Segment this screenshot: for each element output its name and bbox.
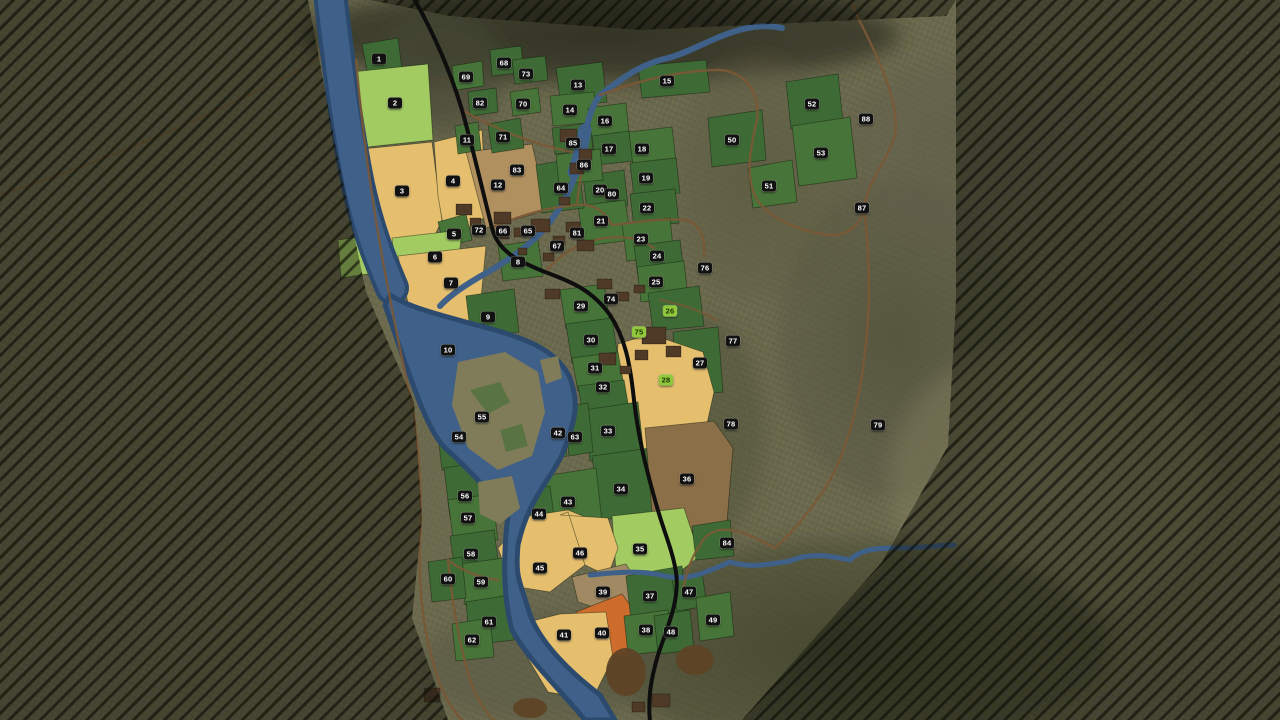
field-label-82[interactable]: 82 [473,98,487,109]
field-label-79[interactable]: 79 [871,420,885,431]
field-label-88[interactable]: 88 [859,114,873,125]
field-label-67[interactable]: 67 [550,241,564,252]
field-label-87[interactable]: 87 [855,203,869,214]
field-label-55[interactable]: 55 [475,412,489,423]
field-label-48[interactable]: 48 [664,627,678,638]
field-label-47[interactable]: 47 [682,587,696,598]
field-label-56[interactable]: 56 [458,491,472,502]
field-label-76[interactable]: 76 [698,263,712,274]
field-label-30[interactable]: 30 [584,335,598,346]
field-label-31[interactable]: 31 [588,363,602,374]
field-label-46[interactable]: 46 [573,548,587,559]
field-label-37[interactable]: 37 [643,591,657,602]
field-label-39[interactable]: 39 [596,587,610,598]
field-label-3[interactable]: 3 [395,186,409,197]
field-label-19[interactable]: 19 [639,173,653,184]
field-label-28[interactable]: 28 [659,375,673,386]
field-label-14[interactable]: 14 [563,105,577,116]
field-label-45[interactable]: 45 [533,563,547,574]
field-label-63[interactable]: 63 [568,432,582,443]
field-label-2[interactable]: 2 [388,98,402,109]
field-label-6[interactable]: 6 [428,252,442,263]
field-label-23[interactable]: 23 [634,234,648,245]
field-label-8[interactable]: 8 [511,257,525,268]
field-label-73[interactable]: 73 [519,69,533,80]
field-label-35[interactable]: 35 [633,544,647,555]
field-label-54[interactable]: 54 [452,432,466,443]
field-label-71[interactable]: 71 [496,132,510,143]
field-label-66[interactable]: 66 [496,226,510,237]
field-label-21[interactable]: 21 [594,216,608,227]
field-label-42[interactable]: 42 [551,428,565,439]
field-label-80[interactable]: 80 [605,189,619,200]
field-label-84[interactable]: 84 [720,538,734,549]
field-label-25[interactable]: 25 [649,277,663,288]
field-label-65[interactable]: 65 [521,226,535,237]
field-label-34[interactable]: 34 [614,484,628,495]
field-label-7[interactable]: 7 [444,278,458,289]
field-label-49[interactable]: 49 [706,615,720,626]
field-label-29[interactable]: 29 [574,301,588,312]
field-label-61[interactable]: 61 [482,617,496,628]
field-label-64[interactable]: 64 [554,183,568,194]
field-label-62[interactable]: 62 [465,635,479,646]
field-label-59[interactable]: 59 [474,577,488,588]
field-label-52[interactable]: 52 [805,99,819,110]
field-label-16[interactable]: 16 [598,116,612,127]
field-label-78[interactable]: 78 [724,419,738,430]
field-label-60[interactable]: 60 [441,574,455,585]
field-label-43[interactable]: 43 [561,497,575,508]
field-label-17[interactable]: 17 [602,144,616,155]
field-label-12[interactable]: 12 [491,180,505,191]
field-label-27[interactable]: 27 [693,358,707,369]
field-label-69[interactable]: 69 [459,72,473,83]
field-label-36[interactable]: 36 [680,474,694,485]
field-label-74[interactable]: 74 [604,294,618,305]
field-label-26[interactable]: 26 [663,306,677,317]
field-label-81[interactable]: 81 [570,228,584,239]
field-label-57[interactable]: 57 [461,513,475,524]
field-label-40[interactable]: 40 [595,628,609,639]
field-label-85[interactable]: 85 [566,138,580,149]
field-label-5[interactable]: 5 [447,229,461,240]
field-label-11[interactable]: 11 [460,135,474,146]
field-label-83[interactable]: 83 [510,165,524,176]
field-label-50[interactable]: 50 [725,135,739,146]
field-label-75[interactable]: 75 [632,327,646,338]
field-label-58[interactable]: 58 [464,549,478,560]
field-label-33[interactable]: 33 [601,426,615,437]
field-label-53[interactable]: 53 [814,148,828,159]
field-label-9[interactable]: 9 [481,312,495,323]
field-label-72[interactable]: 72 [472,225,486,236]
field-label-77[interactable]: 77 [726,336,740,347]
field-label-24[interactable]: 24 [650,251,664,262]
field-label-13[interactable]: 13 [571,80,585,91]
overview-map[interactable]: 1234567891011121314151617181920212223242… [0,0,1280,720]
field-label-layer: 1234567891011121314151617181920212223242… [0,0,1280,720]
field-label-41[interactable]: 41 [557,630,571,641]
field-label-44[interactable]: 44 [532,509,546,520]
field-label-22[interactable]: 22 [640,203,654,214]
field-label-10[interactable]: 10 [441,345,455,356]
field-label-4[interactable]: 4 [446,176,460,187]
field-label-32[interactable]: 32 [596,382,610,393]
field-label-70[interactable]: 70 [516,99,530,110]
field-label-68[interactable]: 68 [497,58,511,69]
field-label-86[interactable]: 86 [577,160,591,171]
field-label-51[interactable]: 51 [762,181,776,192]
field-label-18[interactable]: 18 [635,144,649,155]
field-label-15[interactable]: 15 [660,76,674,87]
field-label-38[interactable]: 38 [639,625,653,636]
field-label-1[interactable]: 1 [372,54,386,65]
